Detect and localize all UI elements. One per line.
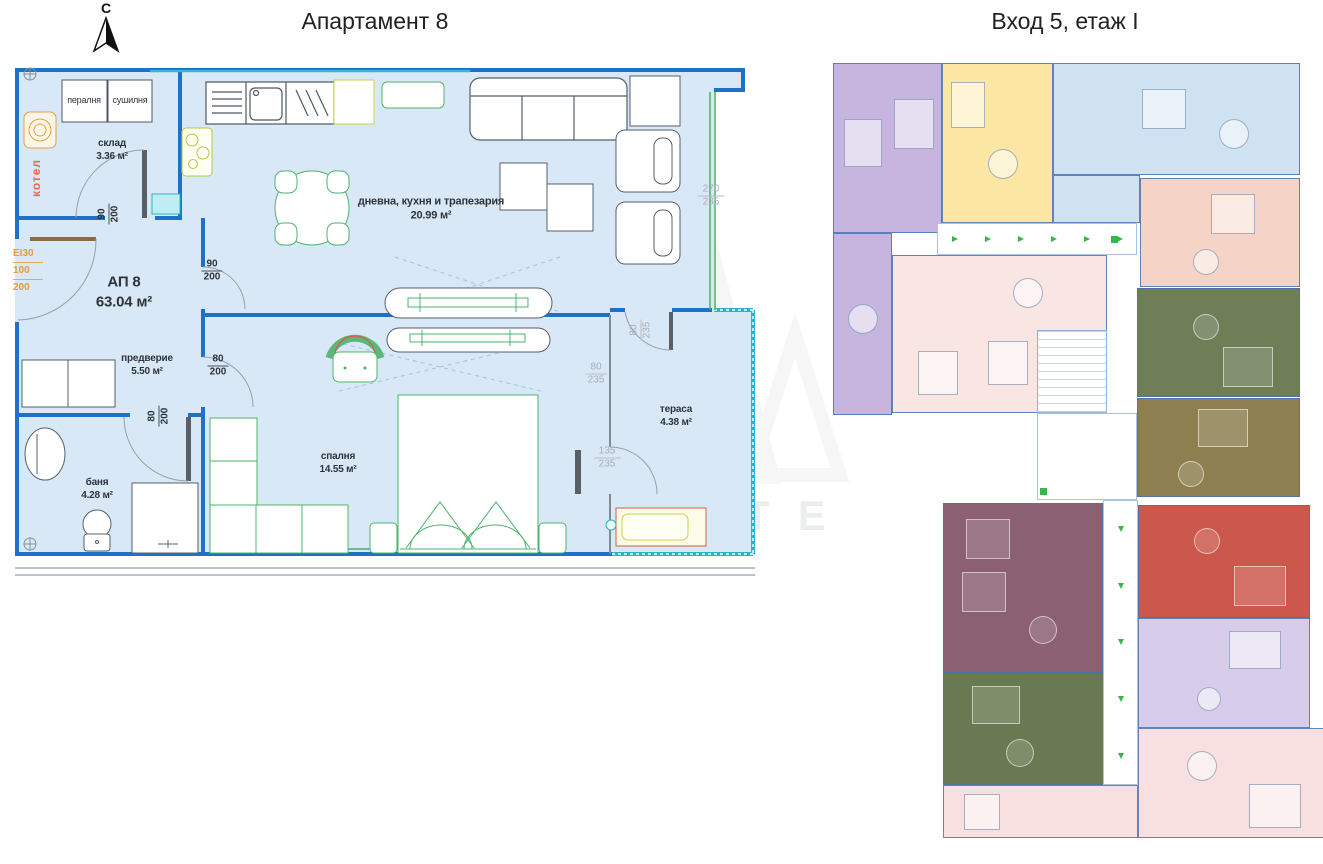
entrance-lobby (1037, 413, 1137, 500)
corridor-vertical (1103, 500, 1138, 785)
room-label-terrace: тераса 4.38 м² (660, 403, 692, 429)
room-label-storage: склад 3.36 м² (96, 137, 128, 163)
cabinet (382, 82, 444, 108)
armchair-1 (616, 130, 680, 192)
dim-terrace-side-door: 80235 (585, 362, 606, 387)
hall-closet (22, 360, 115, 407)
room-label-bath: баня 4.28 м² (81, 476, 113, 502)
dryer-label: сушилня (113, 95, 148, 107)
exit-marker-2 (1040, 488, 1047, 495)
unit-top-left-purple (833, 63, 942, 233)
room-label-hall: предверие 5.50 м² (121, 352, 173, 378)
kitchen-counter (206, 82, 334, 124)
apartment-label: АП 8 63.04 м² (96, 273, 152, 312)
left-plan-title: Апартамент 8 (235, 8, 515, 35)
coffee-table-2 (547, 184, 593, 231)
coffee-table-1 (500, 163, 547, 210)
side-table (630, 76, 680, 126)
unit-top-right-blue (1053, 63, 1300, 175)
dim-living-window: 270235 (698, 184, 725, 209)
dim-kitchen-door: 90200 (201, 259, 222, 284)
unit-right-red (1138, 505, 1310, 618)
boiler-label: котел (29, 159, 43, 197)
unit-right-khaki (1137, 398, 1300, 497)
fridge (334, 80, 374, 124)
dim-terrace-window: 135235 (594, 446, 621, 471)
unit-right-darkgreen (1137, 288, 1300, 397)
unit-center-mauve (943, 503, 1103, 673)
north-arrow-icon (91, 16, 121, 54)
pass-through (152, 194, 180, 214)
armchair-2 (616, 202, 680, 264)
floor-plan-sheet: С Апартамент 8 Вход 5, етаж I ESTATE (0, 0, 1323, 864)
dim-terrace-upper: 80235 (629, 319, 654, 340)
unit-right-salmon (1140, 178, 1300, 287)
room-label-living: дневна, кухня и трапезария 20.99 м² (358, 195, 504, 224)
building-floor-plan (830, 60, 1323, 850)
cooktop (182, 128, 212, 176)
dim-bath-door: 80200 (147, 405, 172, 426)
unit-top-right-blue-wing (1053, 175, 1140, 223)
unit-top-middle-yellow (942, 63, 1053, 223)
room-label-bedroom: спалня 14.55 м² (320, 450, 357, 476)
bed (398, 395, 538, 553)
stairwell (1037, 330, 1107, 413)
fire-door-spec: ЕІ30 100 200 (13, 246, 43, 296)
unit-top-left-purple-wing (833, 233, 892, 415)
dining-set (275, 171, 349, 245)
unit-right-lavender (1138, 618, 1310, 728)
nightstand-left (370, 523, 397, 553)
washer-label: пералня (67, 95, 101, 107)
slab-edges (15, 568, 755, 575)
exit-marker-1 (1111, 236, 1118, 243)
boiler (24, 112, 56, 148)
compass-north-label: С (86, 0, 126, 16)
unit-bottom-right-pink (1138, 728, 1323, 838)
unit-bottom-darkgreen (943, 673, 1105, 785)
nightstand-right (539, 523, 566, 553)
terrace-planter (606, 508, 706, 546)
dim-bedroom-door: 80200 (207, 354, 228, 379)
sofa (470, 78, 627, 140)
compass: С (86, 0, 126, 59)
right-plan-title: Вход 5, етаж I (925, 8, 1205, 35)
corridor-horizontal (937, 223, 1137, 255)
unit-bottom-pink (943, 785, 1138, 838)
dim-storage-door: 90200 (97, 203, 122, 224)
